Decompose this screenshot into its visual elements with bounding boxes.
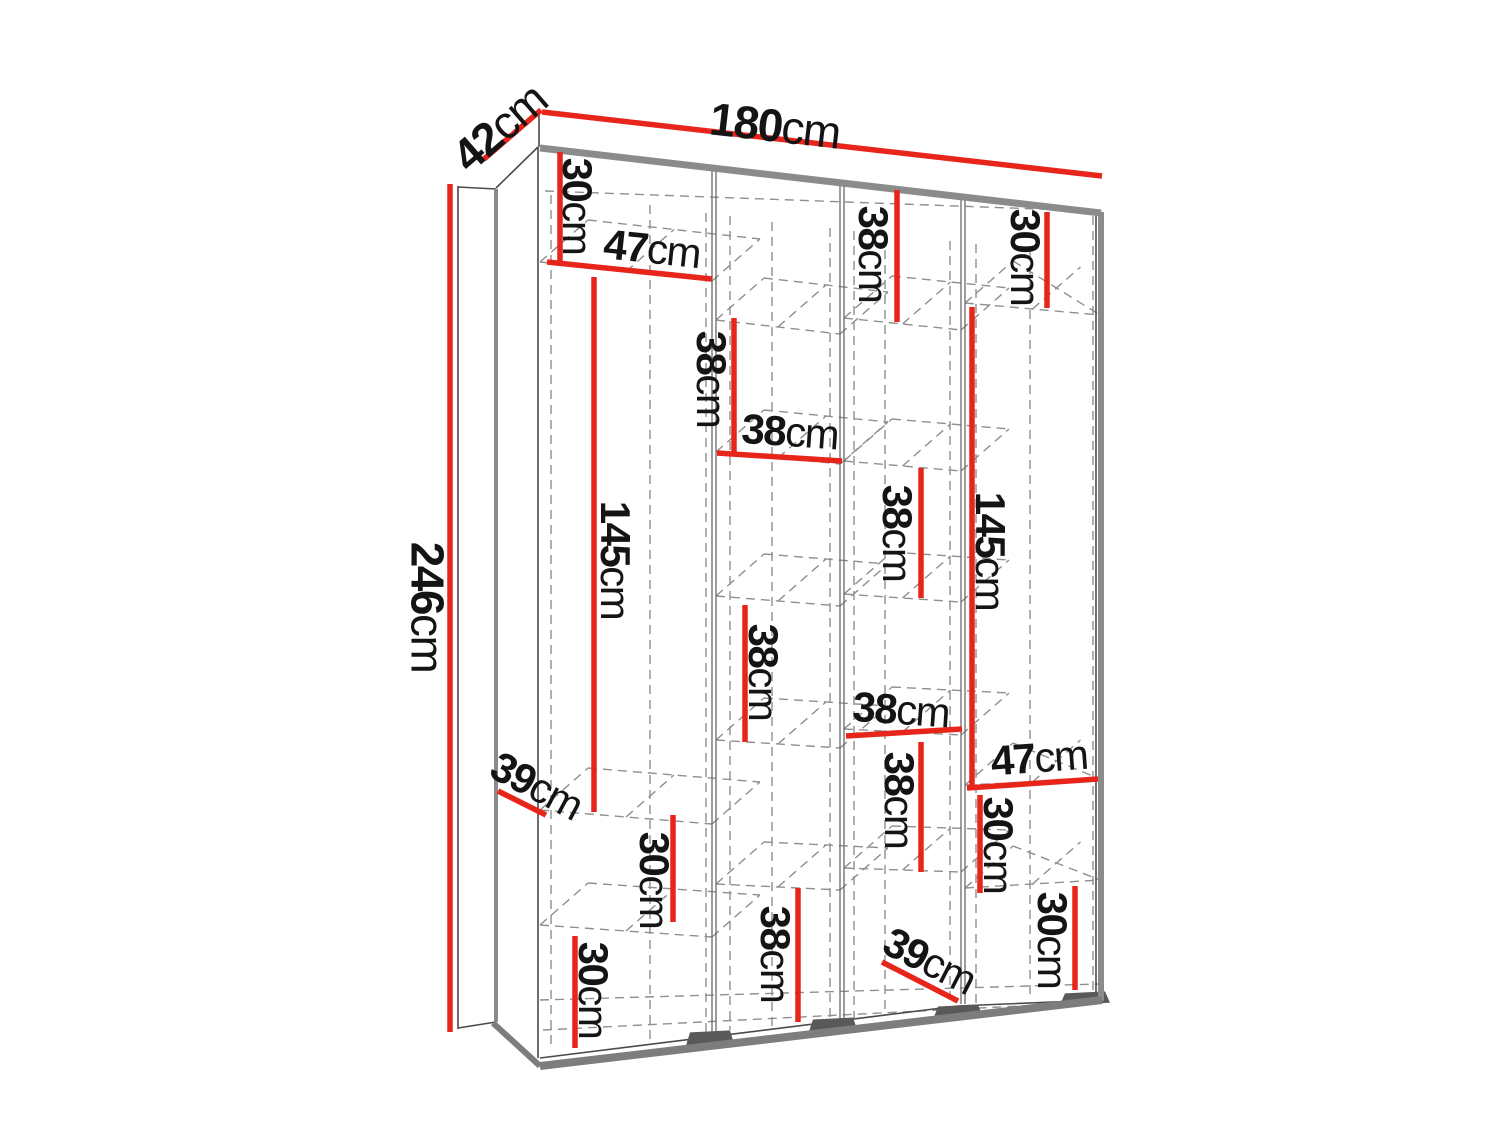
dimension-value: 30 [554, 158, 601, 202]
shelf-depth-edge [716, 554, 764, 596]
dimension-label-c1-width-47: 47cm [601, 220, 702, 277]
dimension-label-c4-mid-30: 30cm [975, 797, 1022, 894]
shelf-depth-edge [903, 282, 951, 324]
dimension-unit: cm [874, 528, 921, 581]
shelf-depth-edge [540, 883, 588, 925]
dimension-label-c1-depth-39: 39cm [483, 742, 590, 829]
dimension-unit: cm [752, 949, 799, 1002]
dimension-label-c3-top-38: 38cm [850, 206, 897, 303]
outline-line [458, 1022, 496, 1028]
dimension-label-c4-width-47: 47cm [989, 731, 1089, 785]
dimension-unit: cm [1002, 252, 1049, 305]
dimension-unit: cm [895, 686, 951, 737]
shelf-depth-edge [903, 424, 951, 466]
dimension-value: 30 [975, 797, 1022, 841]
base-edge [493, 1023, 540, 1066]
shelf-depth-edge [778, 845, 826, 887]
dashed-line [540, 984, 1099, 1000]
dimension-unit: cm [975, 840, 1022, 893]
shelf-depth-edge [712, 782, 760, 824]
dimension-unit: cm [967, 557, 1014, 610]
shelf-depth-edge [778, 285, 826, 327]
partitions [712, 167, 965, 1038]
shelf-depth-edge [961, 288, 1009, 330]
dimension-value: 47 [989, 734, 1036, 784]
shelf-back-edge [1013, 846, 1100, 880]
shelf-depth-edge [712, 239, 760, 281]
dimension-label-height: 246cm [401, 542, 453, 673]
dimension-unit: cm [740, 667, 787, 720]
dimension-label-c2-width-38: 38cm [740, 405, 840, 459]
dimension-value: 47 [601, 220, 650, 271]
base-edge [540, 1000, 1102, 1066]
dimension-unit: cm [850, 249, 897, 302]
dimension-unit: cm [631, 875, 678, 928]
dimension-value: 38 [740, 624, 787, 669]
dimension-label-c4-bot-30: 30cm [1029, 892, 1076, 989]
dimension-value: 30 [631, 832, 678, 876]
shelf-depth-edge [716, 842, 764, 884]
dimension-label-c3-width-38: 38cm [851, 683, 951, 737]
dimension-value: 180 [707, 92, 785, 152]
dimension-unit: cm [688, 374, 735, 427]
dimension-unit: cm [876, 795, 923, 848]
dimension-value: 38 [851, 683, 899, 733]
outline-line [458, 187, 496, 189]
dimension-unit: cm [1029, 935, 1076, 988]
shelf-depth-edge [844, 419, 892, 461]
dimension-unit: cm [401, 614, 453, 672]
dimension-label-c2-cell-38b: 38cm [740, 624, 787, 721]
dimension-unit: cm [779, 101, 843, 159]
shelf-depth-edge [961, 693, 1009, 735]
dimension-label-c3-cell-38b: 38cm [876, 752, 923, 849]
dimension-label-c1-top-30: 30cm [554, 158, 601, 255]
dimension-unit: cm [570, 985, 617, 1038]
dimension-unit: cm [784, 408, 840, 459]
dimension-unit: cm [592, 566, 639, 619]
wardrobe-dimension-diagram: 42cm180cm246cm30cm47cm145cm39cm30cm30cm3… [0, 0, 1500, 1125]
dimension-value: 38 [850, 206, 897, 251]
dimension-value: 145 [967, 492, 1014, 559]
dimension-unit: cm [645, 225, 703, 277]
interior-dashed-lines [540, 191, 1100, 1050]
shelf-back-edge [764, 554, 888, 564]
dimension-value: 30 [1002, 209, 1049, 253]
dimension-value: 38 [752, 906, 799, 951]
dimension-value: 145 [592, 501, 639, 568]
shelf-depth-edge [778, 559, 826, 601]
dimension-label-c1-bot-30: 30cm [570, 942, 617, 1039]
dimension-value: 30 [1029, 892, 1076, 936]
dimension-label-c1-hang-145: 145cm [592, 501, 639, 620]
dimension-label-width: 180cm [707, 92, 843, 158]
dimension-value: 38 [688, 331, 735, 376]
dimension-value: 38 [874, 485, 921, 530]
dimension-unit: cm [554, 201, 601, 254]
dimension-label-c4-top-30: 30cm [1002, 209, 1049, 306]
dimension-label-c1-mid-30: 30cm [631, 832, 678, 929]
dimension-value: 38 [740, 405, 788, 455]
shelf-depth-edge [961, 429, 1009, 471]
dimension-value: 246 [401, 542, 453, 614]
dimension-label-c3-cell-38a: 38cm [874, 485, 921, 582]
dimension-value: 38 [876, 752, 923, 797]
diagram-stage: 42cm180cm246cm30cm47cm145cm39cm30cm30cm3… [0, 0, 1500, 1125]
dimension-label-c2-bot-38: 38cm [752, 906, 799, 1003]
cabinet-edge [540, 148, 1101, 213]
dimension-unit: cm [1033, 731, 1089, 782]
dimension-label-c4-hang-145: 145cm [967, 492, 1014, 611]
shelf-depth-edge [716, 278, 764, 320]
dimension-label-c2-cell-38a: 38cm [688, 331, 735, 428]
dimension-value: 30 [570, 942, 617, 986]
